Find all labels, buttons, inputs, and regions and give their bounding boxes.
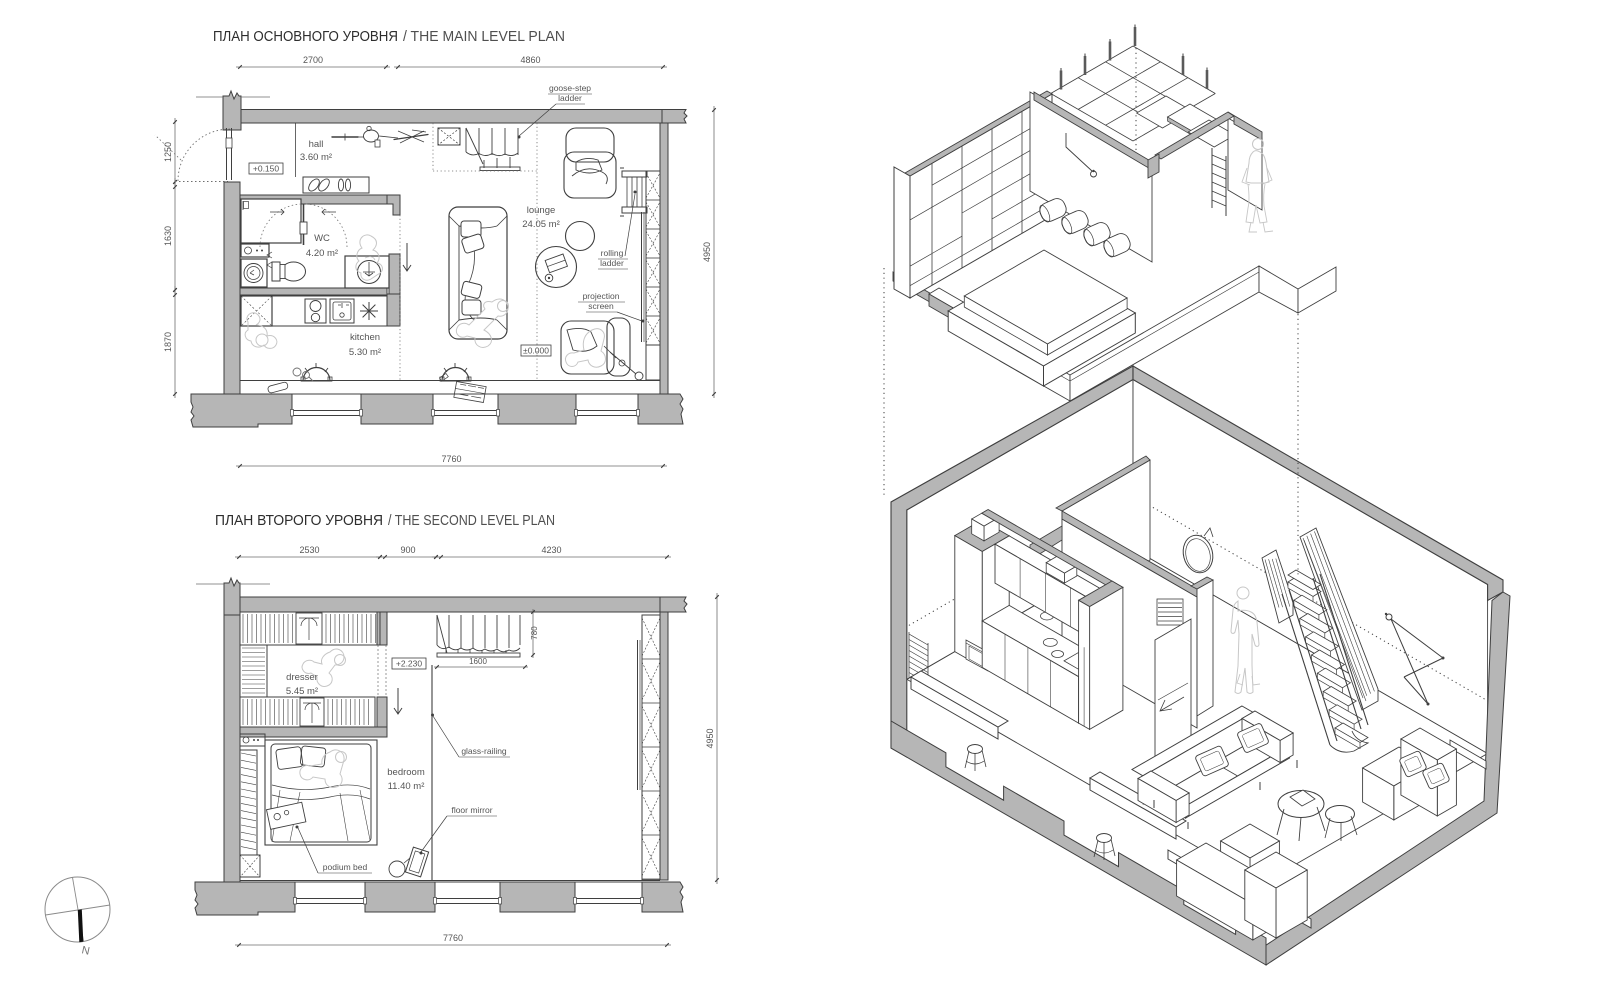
svg-text:1870: 1870	[163, 332, 173, 352]
svg-text:hall: hall	[309, 139, 324, 150]
svg-text:/ THE SECOND LEVEL PLAN: / THE SECOND LEVEL PLAN	[388, 513, 555, 529]
svg-text:ПЛАН ОСНОВНОГО УРОВНЯ: ПЛАН ОСНОВНОГО УРОВНЯ	[213, 29, 398, 45]
svg-text:4230: 4230	[541, 545, 561, 555]
svg-text:24.05 m²: 24.05 m²	[522, 219, 560, 230]
svg-text:5.45 m²: 5.45 m²	[286, 686, 318, 697]
svg-text:ПЛАН ВТОРОГО УРОВНЯ: ПЛАН ВТОРОГО УРОВНЯ	[215, 513, 383, 529]
svg-text:1250: 1250	[163, 142, 173, 162]
svg-text:ladder: ladder	[600, 258, 624, 268]
svg-text:1600: 1600	[469, 657, 487, 666]
svg-text:podium bed: podium bed	[323, 862, 368, 872]
svg-text:4860: 4860	[520, 55, 540, 65]
svg-text:+0.150: +0.150	[253, 164, 280, 174]
svg-text:/ THE MAIN LEVEL PLAN: / THE MAIN LEVEL PLAN	[403, 29, 565, 45]
svg-text:screen: screen	[588, 301, 614, 311]
svg-text:4950: 4950	[705, 728, 715, 748]
svg-text:4.20 m²: 4.20 m²	[306, 248, 338, 259]
svg-text:±0.000: ±0.000	[523, 346, 549, 356]
svg-text:2530: 2530	[299, 545, 319, 555]
svg-text:5.30 m²: 5.30 m²	[349, 347, 381, 358]
svg-text:4950: 4950	[702, 242, 712, 262]
svg-text:dresser: dresser	[286, 672, 318, 683]
svg-text:11.40 m²: 11.40 m²	[388, 781, 425, 792]
svg-text:glass-railing: glass-railing	[461, 746, 507, 756]
svg-text:bedroom: bedroom	[387, 767, 425, 778]
svg-text:goose-step: goose-step	[549, 83, 591, 93]
svg-text:projection: projection	[583, 291, 620, 301]
svg-text:ladder: ladder	[558, 93, 582, 103]
svg-text:7760: 7760	[443, 933, 463, 943]
svg-text:WC: WC	[314, 233, 330, 244]
svg-text:3.60 m²: 3.60 m²	[300, 152, 332, 163]
svg-text:900: 900	[400, 545, 415, 555]
svg-text:rolling: rolling	[601, 248, 624, 258]
svg-text:kitchen: kitchen	[350, 332, 380, 343]
svg-text:7760: 7760	[441, 454, 461, 464]
svg-text:N: N	[80, 944, 90, 957]
svg-text:2700: 2700	[303, 55, 323, 65]
svg-text:+2.230: +2.230	[396, 659, 423, 669]
svg-text:780: 780	[530, 626, 539, 640]
svg-text:floor mirror: floor mirror	[451, 805, 492, 815]
svg-text:lounge: lounge	[527, 205, 556, 216]
svg-text:1630: 1630	[163, 226, 173, 246]
